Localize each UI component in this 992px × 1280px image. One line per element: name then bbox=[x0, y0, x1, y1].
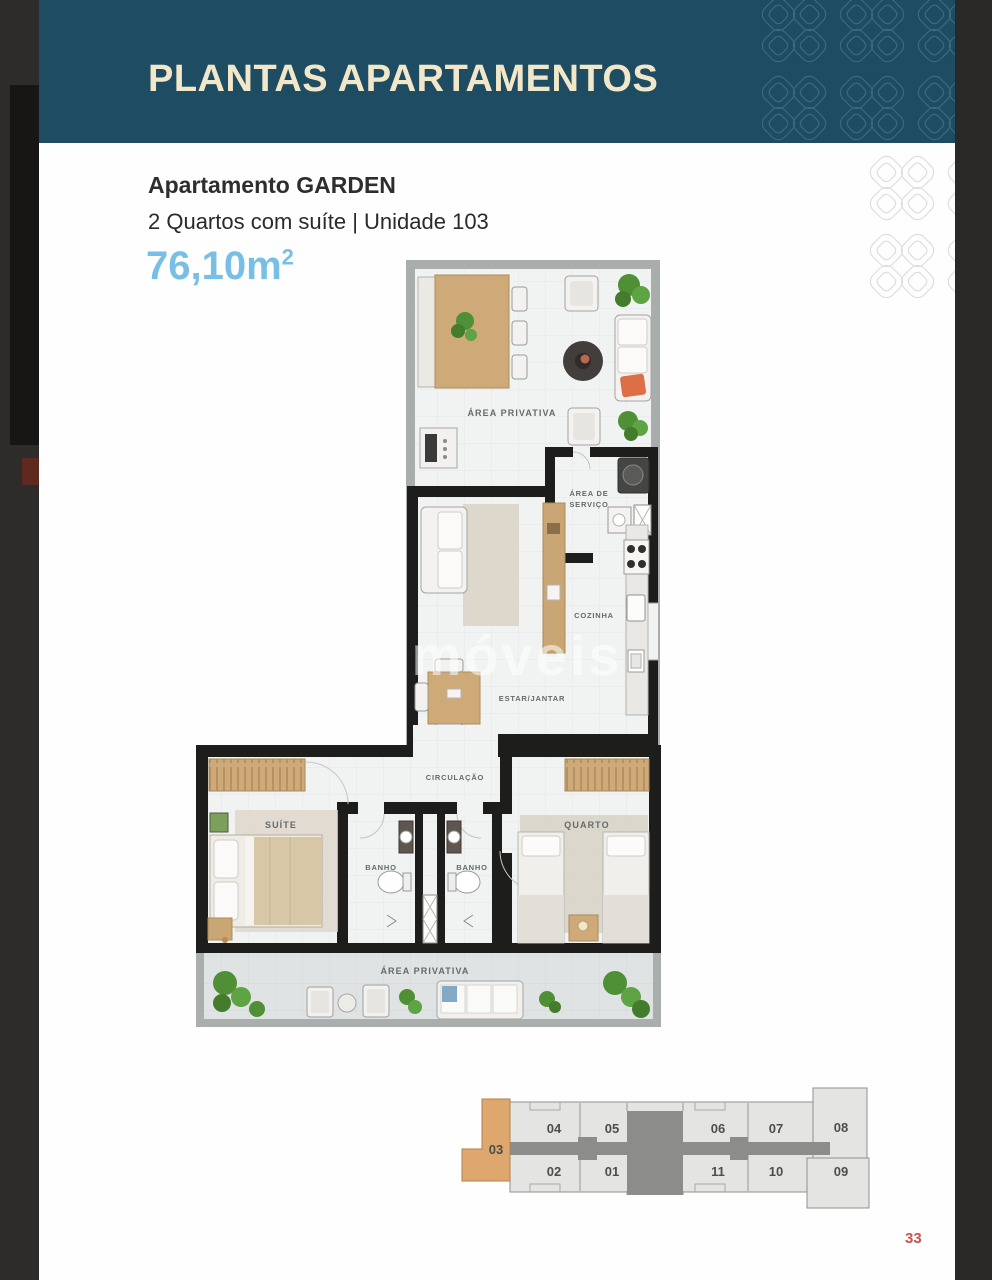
circulation-opening bbox=[413, 725, 498, 759]
wall bbox=[407, 486, 547, 497]
unit-number-10: 10 bbox=[769, 1164, 783, 1179]
unit-number-07: 07 bbox=[769, 1121, 783, 1136]
label-suite: SUÍTE bbox=[265, 820, 297, 830]
floorplan: ÁREA PRIVATIVA ÁREA DE SERV bbox=[195, 255, 670, 1045]
unit-number-11: 11 bbox=[711, 1164, 725, 1179]
wall bbox=[498, 734, 658, 745]
unit-number-03: 03 bbox=[489, 1142, 503, 1157]
label-banho-1: BANHO bbox=[365, 863, 397, 872]
label-quarto: QUARTO bbox=[564, 820, 609, 830]
sliding-door-opening bbox=[648, 603, 658, 660]
unit-number-09: 09 bbox=[834, 1164, 848, 1179]
watermark: móveis bbox=[412, 624, 623, 687]
keyplan-corridor bbox=[510, 1142, 830, 1155]
suite-wall bbox=[337, 814, 348, 953]
unit-number-08: 08 bbox=[834, 1120, 848, 1135]
garden-sofa bbox=[615, 315, 651, 401]
armchair-mid bbox=[568, 408, 600, 445]
label-area-privativa-top: ÁREA PRIVATIVA bbox=[467, 408, 556, 418]
left-dark-panel bbox=[10, 85, 39, 445]
building-keyplan: 03 04 05 06 07 08 02 01 11 10 09 bbox=[455, 1085, 870, 1210]
keyplan-unit03-highlight bbox=[462, 1099, 510, 1181]
header-flower-pattern bbox=[739, 0, 955, 143]
wall bbox=[590, 447, 658, 457]
sidebar-flower-pattern bbox=[856, 146, 955, 314]
wall bbox=[437, 814, 445, 953]
page-title: PLANTAS APARTAMENTOS bbox=[148, 58, 658, 101]
label-banho-2: BANHO bbox=[456, 863, 488, 872]
label-area-privativa-bottom: ÁREA PRIVATIVA bbox=[380, 966, 469, 976]
banho2-door-gap bbox=[457, 802, 483, 814]
left-red-accent bbox=[22, 458, 39, 485]
banho1-door-gap bbox=[358, 802, 384, 814]
quarto-wall bbox=[500, 757, 512, 802]
lower-wing: CIRCULAÇÃO SUÍTE bbox=[196, 725, 661, 1027]
unit-number-01: 01 bbox=[605, 1164, 619, 1179]
round-coffee-table bbox=[563, 341, 603, 381]
garden-floor bbox=[204, 953, 653, 1019]
quarto-wall bbox=[500, 853, 512, 953]
right-background-strip bbox=[955, 0, 992, 1280]
wall bbox=[545, 447, 573, 457]
label-area-servico-2: SERVIÇO bbox=[569, 500, 608, 509]
corridor-node bbox=[730, 1137, 748, 1160]
armchair-top bbox=[565, 276, 598, 311]
apartment-name: Apartamento GARDEN bbox=[148, 172, 396, 199]
tv-unit bbox=[420, 428, 457, 468]
corridor-node bbox=[578, 1137, 597, 1160]
unit-number-06: 06 bbox=[711, 1121, 725, 1136]
label-cozinha: COZINHA bbox=[574, 611, 614, 620]
label-circulacao: CIRCULAÇÃO bbox=[426, 773, 484, 782]
brochure-page: PLANTAS APARTAMENTOS Apartamento GARDEN … bbox=[0, 0, 992, 1280]
unit-number-04: 04 bbox=[547, 1121, 562, 1136]
label-estar-jantar: ESTAR/JANTAR bbox=[499, 694, 565, 703]
label-area-servico-1: ÁREA DE bbox=[569, 489, 608, 498]
shaft bbox=[423, 895, 437, 943]
unit-number-02: 02 bbox=[547, 1164, 561, 1179]
page-number: 33 bbox=[905, 1230, 922, 1247]
apartment-specs: 2 Quartos com suíte | Unidade 103 bbox=[148, 209, 489, 235]
wall bbox=[415, 814, 423, 953]
wall bbox=[648, 447, 658, 745]
unit-number-05: 05 bbox=[605, 1121, 619, 1136]
